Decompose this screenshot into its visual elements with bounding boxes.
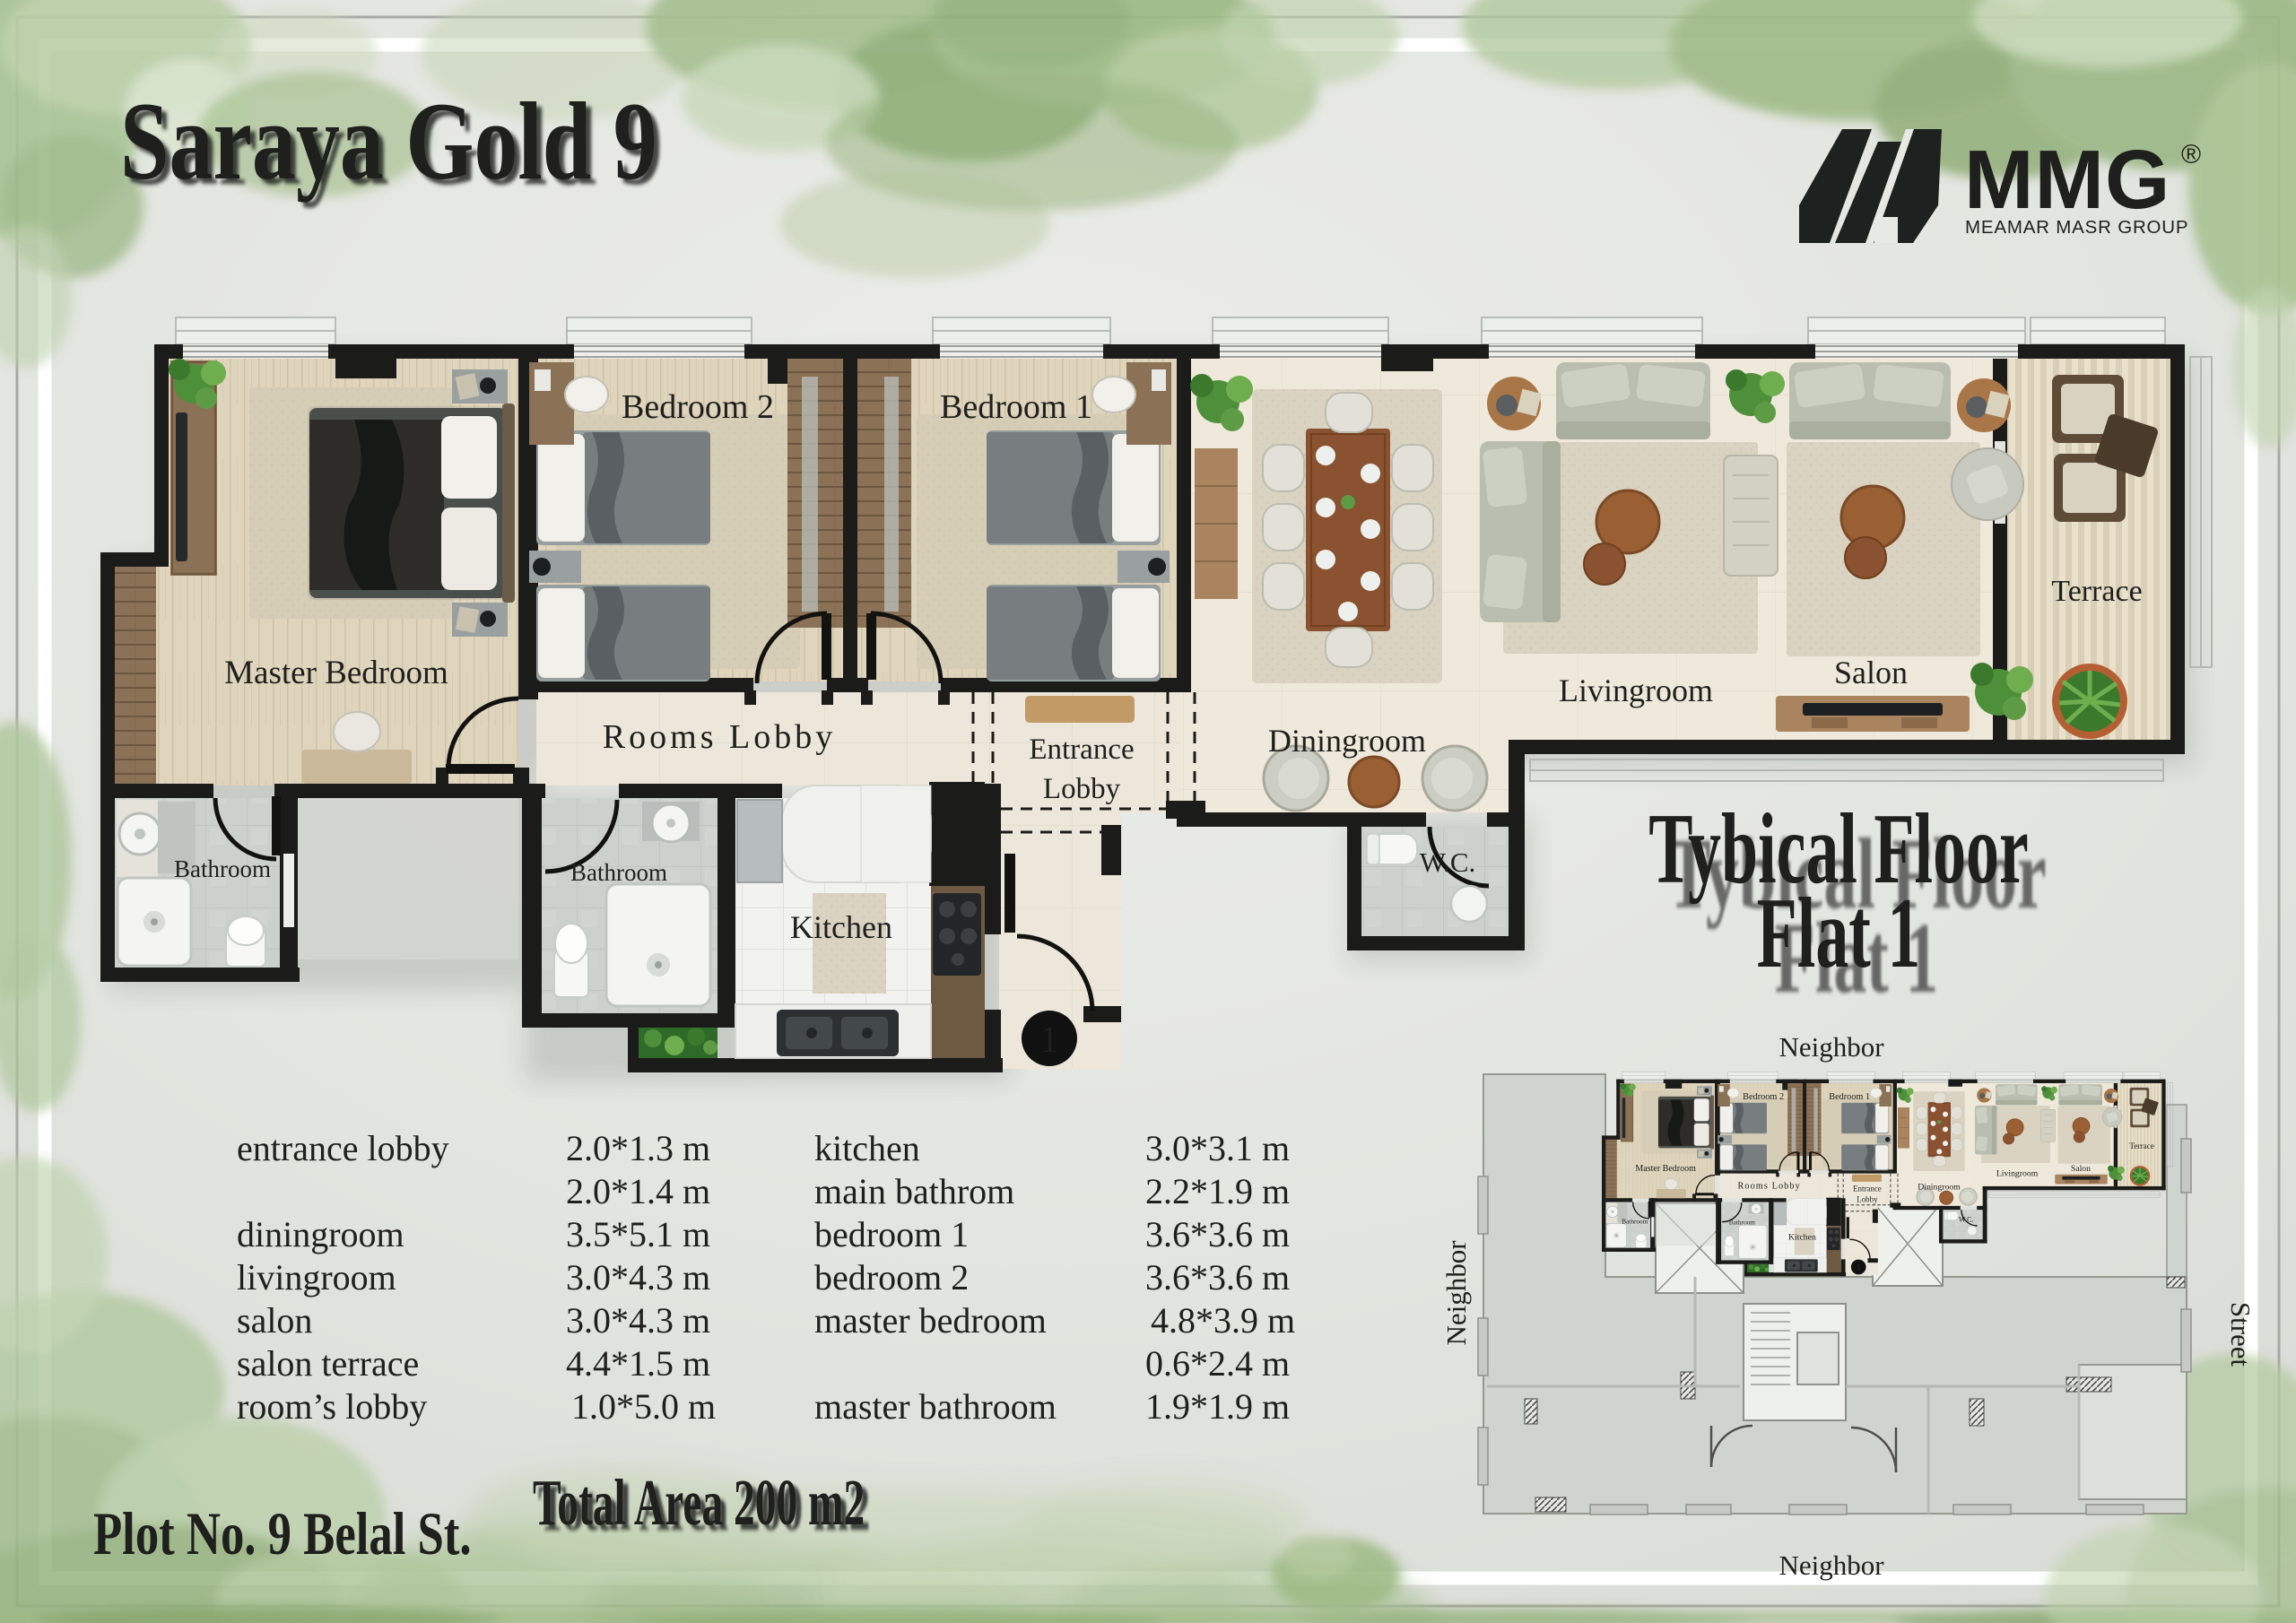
svg-text:Bathroom: Bathroom <box>570 859 667 886</box>
svg-text:Diningroom: Diningroom <box>1268 723 1426 759</box>
svg-text:master bedroom: master bedroom <box>814 1300 1047 1341</box>
svg-text:3.5*5.1 m: 3.5*5.1 m <box>566 1214 710 1254</box>
svg-text:Terrace: Terrace <box>2051 575 2142 608</box>
svg-text:Bedroom 2: Bedroom 2 <box>622 388 774 426</box>
svg-text:0.6*2.4 m: 0.6*2.4 m <box>1145 1343 1290 1384</box>
svg-text:Plot No. 9 Belal St.: Plot No. 9 Belal St. <box>93 1501 472 1568</box>
svg-text:bedroom 2: bedroom 2 <box>814 1257 969 1298</box>
svg-text:Rooms Lobby: Rooms Lobby <box>603 718 836 756</box>
svg-text:Master Bedroom: Master Bedroom <box>224 655 448 691</box>
svg-text:Bedroom 1: Bedroom 1 <box>940 388 1092 426</box>
svg-text:3.6*3.6 m: 3.6*3.6 m <box>1145 1257 1290 1298</box>
svg-text:4.8*3.9 m: 4.8*3.9 m <box>1151 1300 1295 1341</box>
svg-text:salon terrace: salon terrace <box>237 1343 419 1384</box>
svg-text:bedroom 1: bedroom 1 <box>814 1214 969 1254</box>
svg-text:Flat 1: Flat 1 <box>1757 877 1921 989</box>
svg-text:Saraya Gold 9: Saraya Gold 9 <box>120 80 657 204</box>
svg-text:Lobby: Lobby <box>1043 773 1121 805</box>
svg-text:3.0*3.1 m: 3.0*3.1 m <box>1145 1128 1290 1168</box>
svg-text:Neighbor: Neighbor <box>1440 1240 1472 1346</box>
svg-text:salon: salon <box>237 1300 312 1341</box>
svg-text:Street: Street <box>2225 1302 2257 1367</box>
svg-text:®: ® <box>2181 140 2201 169</box>
svg-text:1.9*1.9 m: 1.9*1.9 m <box>1145 1386 1290 1427</box>
svg-text:3.0*4.3 m: 3.0*4.3 m <box>566 1257 710 1298</box>
svg-text:3.6*3.6 m: 3.6*3.6 m <box>1145 1214 1290 1254</box>
svg-text:master bathroom: master bathroom <box>814 1386 1057 1427</box>
svg-text:1.0*5.0 m: 1.0*5.0 m <box>571 1386 716 1427</box>
svg-text:3.0*4.3 m: 3.0*4.3 m <box>566 1300 710 1341</box>
svg-text:Entrance: Entrance <box>1029 733 1134 766</box>
svg-text:diningroom: diningroom <box>237 1214 404 1254</box>
svg-text:2.0*1.3 m: 2.0*1.3 m <box>566 1128 710 1168</box>
svg-text:Salon: Salon <box>1834 655 1908 690</box>
svg-text:kitchen: kitchen <box>814 1128 920 1168</box>
svg-text:entrance lobby: entrance lobby <box>237 1128 449 1168</box>
svg-text:4.4*1.5 m: 4.4*1.5 m <box>566 1343 710 1384</box>
svg-text:Total Area 200 m2: Total Area 200 m2 <box>533 1467 865 1540</box>
svg-text:Kitchen: Kitchen <box>790 909 892 945</box>
svg-text:Bathroom: Bathroom <box>174 855 271 882</box>
svg-text:2.2*1.9 m: 2.2*1.9 m <box>1145 1171 1290 1211</box>
svg-text:2.0*1.4 m: 2.0*1.4 m <box>566 1171 710 1211</box>
svg-text:Livingroom: Livingroom <box>1559 673 1713 708</box>
svg-text:MMG: MMG <box>1964 133 2170 226</box>
svg-text:W.C.: W.C. <box>1420 846 1476 878</box>
svg-text:livingroom: livingroom <box>237 1257 396 1298</box>
svg-text:room’s lobby: room’s lobby <box>237 1386 427 1427</box>
svg-text:main bathrom: main bathrom <box>814 1171 1014 1211</box>
svg-text:1: 1 <box>1040 1020 1059 1061</box>
svg-text:MEAMAR MASR GROUP: MEAMAR MASR GROUP <box>1965 217 2188 238</box>
svg-text:Neighbor: Neighbor <box>1779 1549 1884 1581</box>
svg-text:Neighbor: Neighbor <box>1779 1031 1884 1063</box>
